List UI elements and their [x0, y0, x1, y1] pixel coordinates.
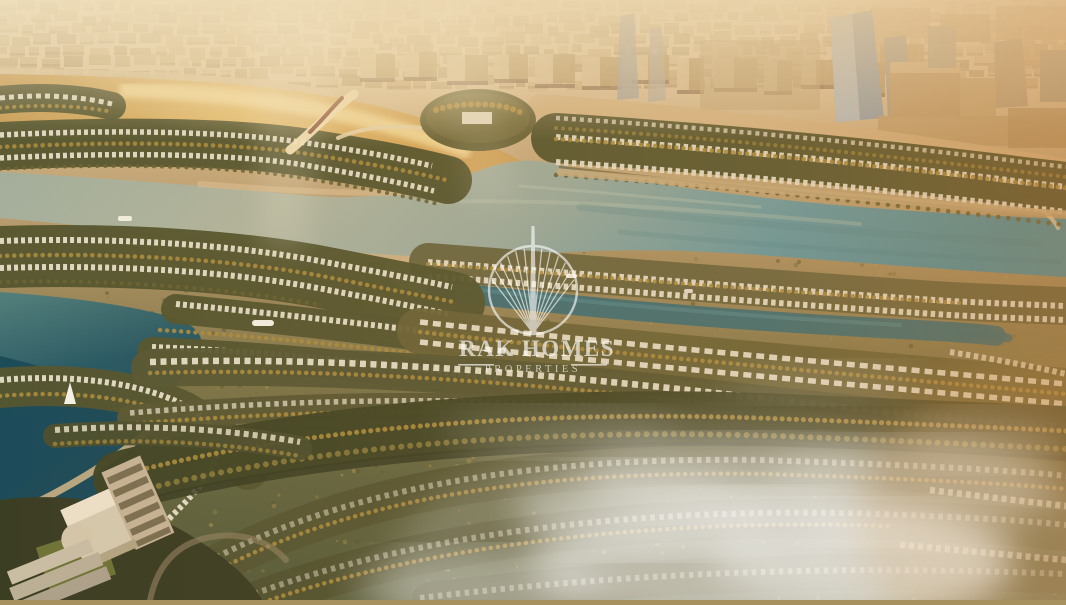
- svg-text:PROPERTIES: PROPERTIES: [485, 364, 581, 375]
- svg-text:RAK HOMES: RAK HOMES: [459, 336, 615, 361]
